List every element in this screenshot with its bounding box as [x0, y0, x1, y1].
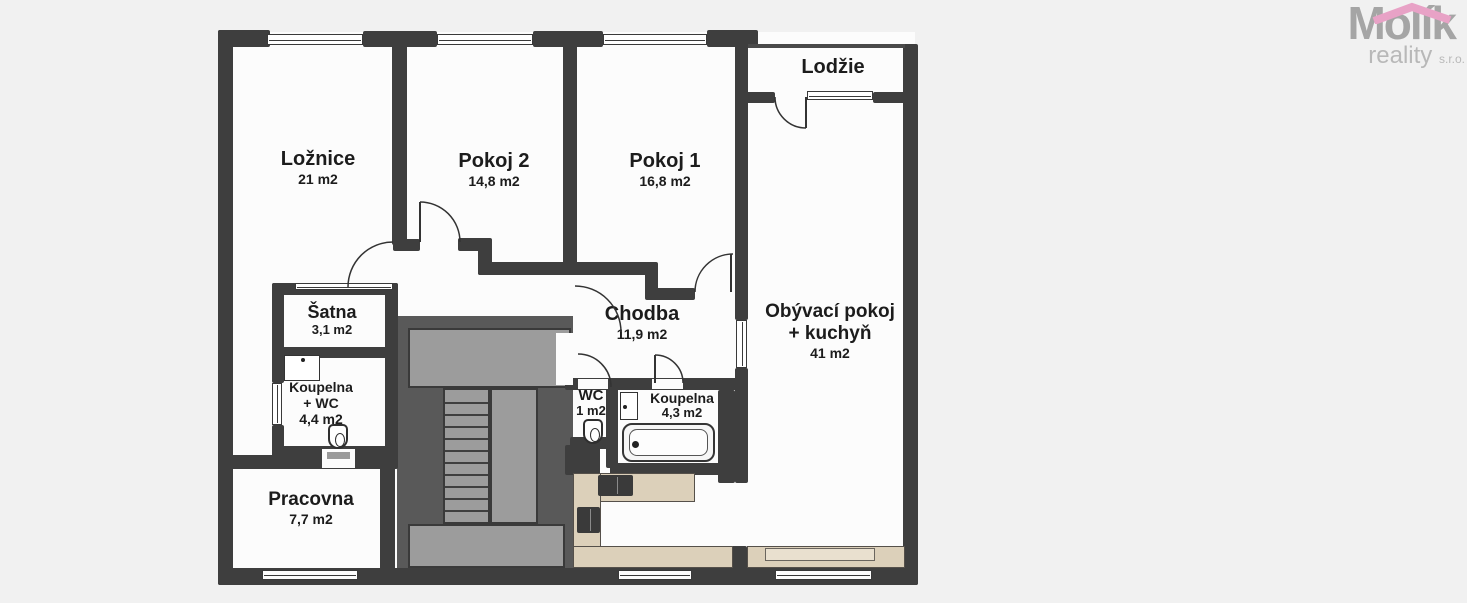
wall: [731, 546, 747, 570]
room-label-koupelna: Koupelna4,3 m2: [572, 390, 792, 421]
room-label-koupelna-wc: Koupelna+ WC4,4 m2: [211, 379, 431, 427]
bathtub-drain: [632, 441, 639, 448]
room-label-line: Šatna: [222, 302, 442, 323]
appliance-divider: [590, 509, 591, 531]
stair-tread: [445, 438, 488, 440]
wall: [393, 239, 420, 251]
wall: [478, 262, 648, 275]
toilet-bowl: [590, 428, 600, 442]
room-label-pokoj1: Pokoj 116,8 m2: [555, 150, 775, 189]
window-pane-line: [605, 40, 705, 41]
room-label-line: 4,3 m2: [572, 406, 792, 421]
room-label-line: Chodba: [532, 303, 752, 326]
loggia-railing: [748, 44, 905, 48]
room-label-line: 11,9 m2: [532, 326, 752, 342]
bathtub-inner: [629, 429, 708, 456]
room-label-line: 16,8 m2: [555, 173, 775, 189]
stair-tread: [445, 510, 488, 512]
wall: [565, 445, 600, 475]
stair-tread: [445, 426, 488, 428]
floorplan: Ložnice21 m2Pokoj 214,8 m2Pokoj 116,8 m2…: [0, 0, 1467, 603]
wall: [218, 30, 270, 47]
wall: [392, 40, 407, 245]
window: [807, 91, 873, 100]
stair-tread: [445, 450, 488, 452]
room-label-line: 4,4 m2: [211, 411, 431, 427]
room-label-line: Lodžie: [723, 56, 943, 79]
window-pane-line: [264, 575, 356, 576]
wall: [218, 455, 398, 469]
toilet: [583, 419, 603, 444]
toilet: [328, 424, 348, 449]
room-label-line: 41 m2: [720, 345, 940, 361]
room-label-obyvaci-pokoj: Obývací pokoj+ kuchyň41 m2: [720, 301, 940, 361]
room-label-line: Pokoj 1: [555, 150, 775, 173]
stair-landing: [408, 524, 565, 568]
room-label-lodzie: Lodžie: [723, 56, 943, 79]
wall: [645, 288, 695, 300]
door-threshold: [327, 452, 350, 459]
room-label-line: 3,1 m2: [222, 323, 442, 338]
stair-tread: [445, 474, 488, 476]
window-pane-line: [809, 96, 871, 97]
window: [603, 34, 707, 45]
window-pane-line: [297, 287, 391, 288]
logo-reality: reality: [1368, 42, 1432, 69]
appliance-divider: [617, 477, 618, 494]
window: [618, 570, 692, 580]
window: [262, 570, 358, 580]
window: [437, 34, 533, 45]
sideboard: [765, 548, 875, 561]
stair-tread: [445, 498, 488, 500]
window-pane-line: [620, 575, 690, 576]
stair-tread: [445, 462, 488, 464]
window: [295, 283, 393, 290]
window: [267, 34, 363, 45]
screenshot-root: { "colors":{ "bg":"#f1f1f1","wall":"#3e3…: [0, 0, 1467, 603]
room-label-line: Koupelna: [211, 379, 431, 395]
window: [775, 570, 872, 580]
window-pane-line: [269, 40, 361, 41]
room-label-pracovna: Pracovna7,7 m2: [201, 489, 421, 527]
room-label-line: Pracovna: [201, 489, 421, 511]
wall: [873, 92, 905, 103]
room-label-line: + WC: [211, 395, 431, 411]
window-pane-line: [777, 575, 870, 576]
room-label-satna: Šatna3,1 m2: [222, 302, 442, 338]
room-label-chodba: Chodba11,9 m2: [532, 303, 752, 342]
room-label-line: + kuchyň: [720, 323, 940, 345]
wall: [742, 92, 775, 103]
room-label-line: Obývací pokoj: [720, 301, 940, 323]
room-label-line: 7,7 m2: [201, 511, 421, 527]
stair-tread: [445, 486, 488, 488]
kitchen-counter: [573, 546, 733, 568]
logo-subtext: reality s.r.o.: [1296, 42, 1467, 70]
kitchen-appliance: [577, 507, 600, 533]
logo-roof-icon: [1370, 2, 1454, 24]
washbasin: [284, 355, 320, 381]
toilet-bowl: [335, 433, 345, 447]
window-pane-line: [439, 40, 531, 41]
logo-sro: s.r.o.: [1439, 52, 1465, 66]
kitchen-appliance: [598, 475, 633, 496]
room-label-line: Koupelna: [572, 390, 792, 406]
tap-icon: [301, 358, 305, 362]
agency-logo: Molík reality s.r.o.: [1296, 0, 1467, 70]
bathtub: [622, 423, 715, 462]
